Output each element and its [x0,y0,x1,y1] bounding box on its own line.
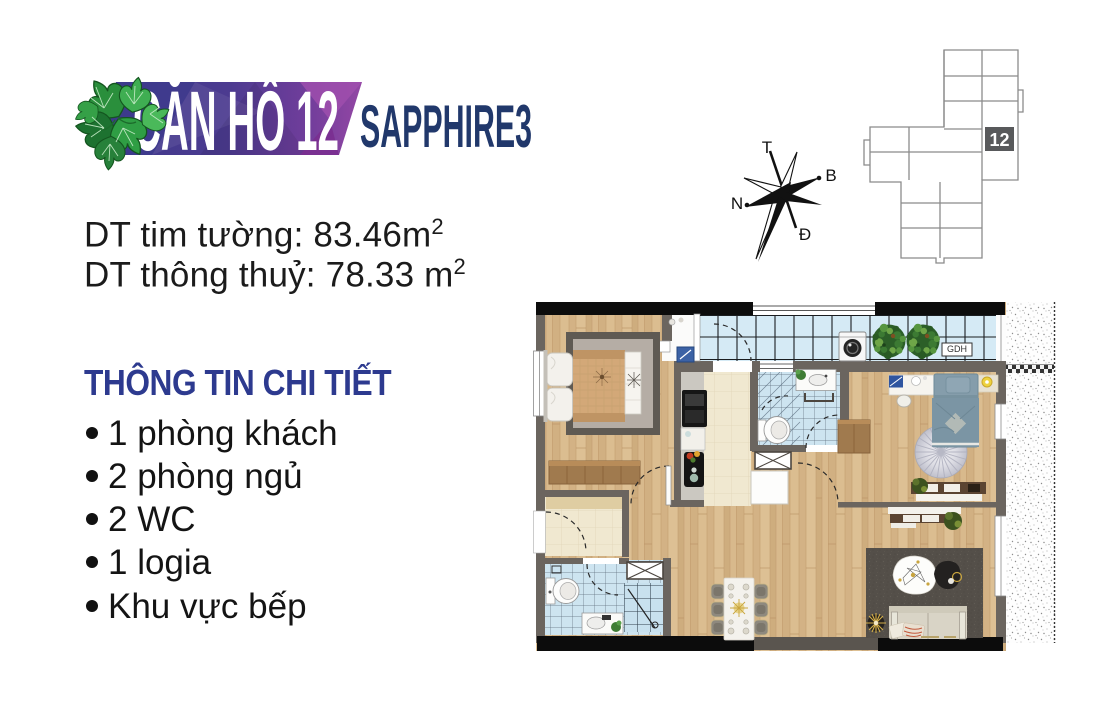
svg-text:GDH: GDH [947,344,967,354]
svg-text:12: 12 [989,130,1009,150]
svg-text:T: T [762,138,772,157]
svg-text:Đ: Đ [799,225,811,244]
svg-text:SAPPHIRE3: SAPPHIRE3 [360,93,532,160]
svg-text:B: B [825,166,836,185]
svg-text:N: N [731,194,743,213]
